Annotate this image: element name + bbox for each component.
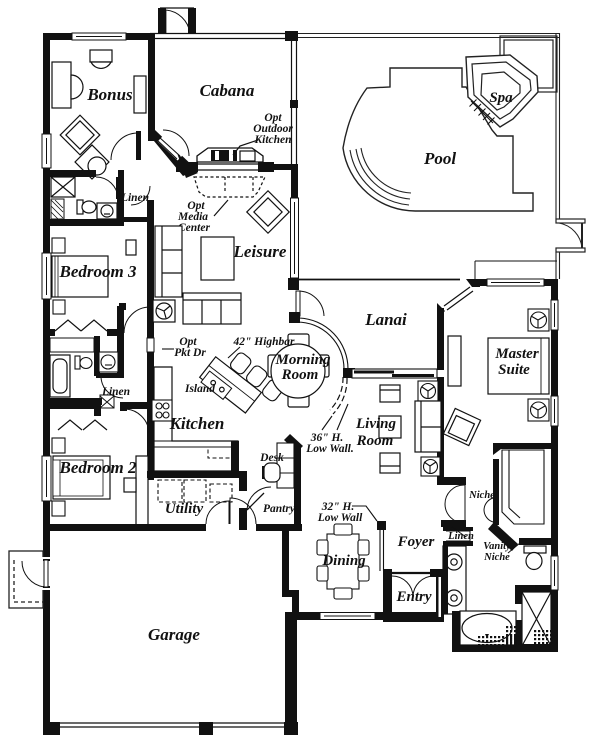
svg-text:Kitchen: Kitchen [169, 414, 225, 433]
svg-text:Pool: Pool [423, 149, 456, 168]
svg-text:Niche: Niche [483, 552, 510, 563]
svg-text:Master: Master [494, 346, 539, 362]
svg-text:Room: Room [356, 433, 394, 449]
svg-text:Desk: Desk [259, 452, 284, 464]
svg-text:Spa: Spa [489, 90, 513, 106]
svg-text:Suite: Suite [498, 362, 530, 378]
svg-text:Dining: Dining [321, 553, 366, 569]
svg-text:Pkt Dr: Pkt Dr [174, 347, 206, 359]
svg-text:Garage: Garage [148, 625, 200, 644]
svg-text:Island: Island [184, 383, 215, 395]
svg-text:Utility: Utility [165, 501, 204, 517]
svg-text:Leisure: Leisure [233, 242, 287, 261]
svg-text:Center: Center [178, 222, 210, 234]
svg-text:Bedroom 3: Bedroom 3 [59, 262, 137, 281]
svg-text:42" Highbar: 42" Highbar [232, 336, 295, 348]
svg-text:Vanity: Vanity [483, 541, 511, 552]
svg-text:Living: Living [355, 416, 396, 432]
svg-text:Lanai: Lanai [364, 310, 407, 329]
svg-text:Low Wall.: Low Wall. [305, 443, 354, 455]
svg-text:Low Wall: Low Wall [317, 512, 363, 524]
svg-text:Pantry: Pantry [263, 503, 296, 515]
svg-text:Kitchen: Kitchen [253, 134, 291, 146]
svg-text:Cabana: Cabana [200, 81, 255, 100]
svg-text:Linen: Linen [101, 386, 130, 398]
svg-text:Bedroom 2: Bedroom 2 [59, 458, 137, 477]
svg-text:Entry: Entry [395, 589, 431, 605]
svg-text:Niche: Niche [468, 490, 495, 501]
svg-text:Morning: Morning [274, 352, 331, 368]
svg-text:Foyer: Foyer [397, 534, 435, 550]
svg-text:Linen: Linen [120, 192, 149, 204]
svg-text:Room: Room [281, 367, 319, 383]
svg-text:Bonus: Bonus [86, 85, 133, 104]
